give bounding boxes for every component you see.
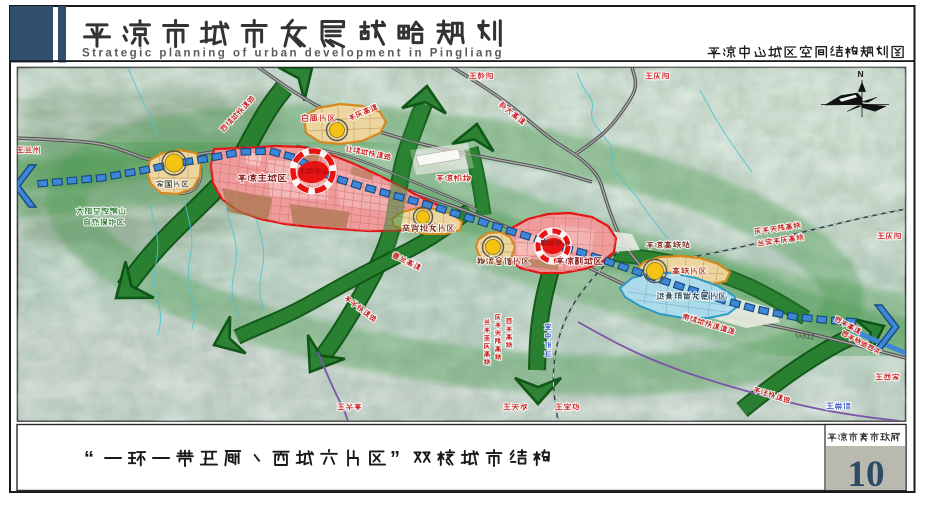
- svg-text:“: “: [84, 448, 94, 470]
- svg-text:N: N: [858, 69, 864, 79]
- svg-text:10: 10: [848, 454, 885, 495]
- svg-text:Strategic planning of urban de: Strategic planning of urban development …: [82, 48, 504, 60]
- svg-text:”: ”: [390, 448, 400, 470]
